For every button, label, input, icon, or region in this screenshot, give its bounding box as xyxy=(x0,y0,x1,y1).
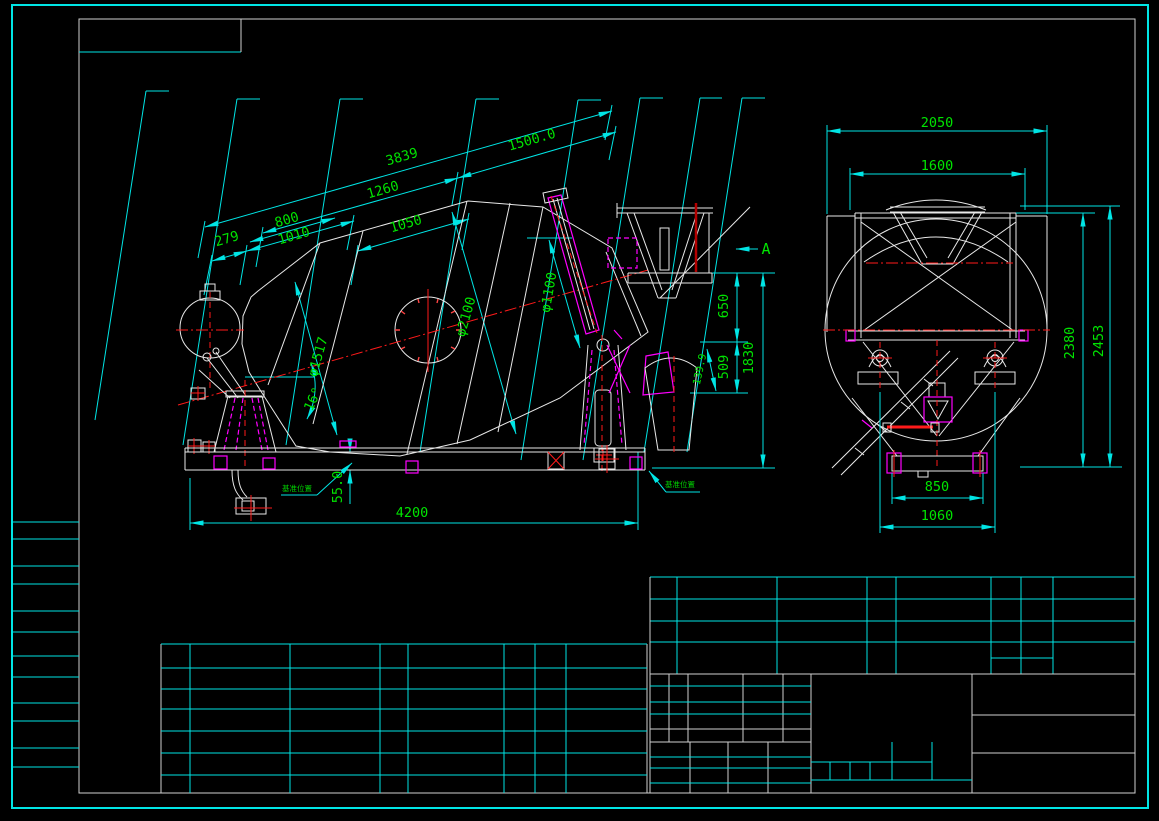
side-view: 279 800 1010 1050 1260 3839 1500.0 φ2100… xyxy=(95,91,775,530)
revision-table xyxy=(650,577,1135,674)
datum-label-left: 基准位置 xyxy=(282,483,312,493)
dim-2380: 2380 xyxy=(1062,327,1078,360)
dim-279: 279 xyxy=(213,228,241,250)
dim-509: 509 xyxy=(716,355,732,379)
title-block xyxy=(650,577,1135,793)
datum-label-right: 基准位置 xyxy=(665,479,695,489)
dim-2050: 2050 xyxy=(921,115,954,131)
dim-4200: 4200 xyxy=(396,505,429,521)
hopper xyxy=(608,203,750,298)
dim-139-9: 139.9 xyxy=(691,353,709,386)
dim-55: 55.0 xyxy=(330,471,346,504)
dim-phi2100: φ2100 xyxy=(453,295,480,338)
dim-1060: 1060 xyxy=(921,508,954,524)
dim-3839: 3839 xyxy=(384,145,420,169)
rear-view: 2050 1600 2380 2453 850 1060 xyxy=(823,115,1122,533)
cad-drawing: 279 800 1010 1050 1260 3839 1500.0 φ2100… xyxy=(0,0,1159,821)
cad-sheet: 279 800 1010 1050 1260 3839 1500.0 φ2100… xyxy=(0,0,1159,821)
dim-1830: 1830 xyxy=(741,342,757,375)
dim-phi1517: φ1517 xyxy=(305,335,332,378)
zone-strip xyxy=(12,522,79,767)
subframe-rail xyxy=(185,441,645,473)
dim-850: 850 xyxy=(925,479,949,495)
water-hose xyxy=(232,470,272,521)
view-a-label: A xyxy=(761,240,770,258)
dim-phi1100: φ1100 xyxy=(538,271,561,314)
dim-1600: 1600 xyxy=(921,158,954,174)
sheet-border xyxy=(12,5,1148,808)
dim-650: 650 xyxy=(716,294,732,318)
parts-list-table xyxy=(161,644,647,793)
dim-1050: 1050 xyxy=(388,212,424,236)
water-tank xyxy=(176,284,244,392)
extension-lines xyxy=(95,91,765,460)
rear-pedestal xyxy=(580,335,626,472)
dim-1500: 1500.0 xyxy=(506,126,557,155)
dim-2453: 2453 xyxy=(1091,325,1107,358)
